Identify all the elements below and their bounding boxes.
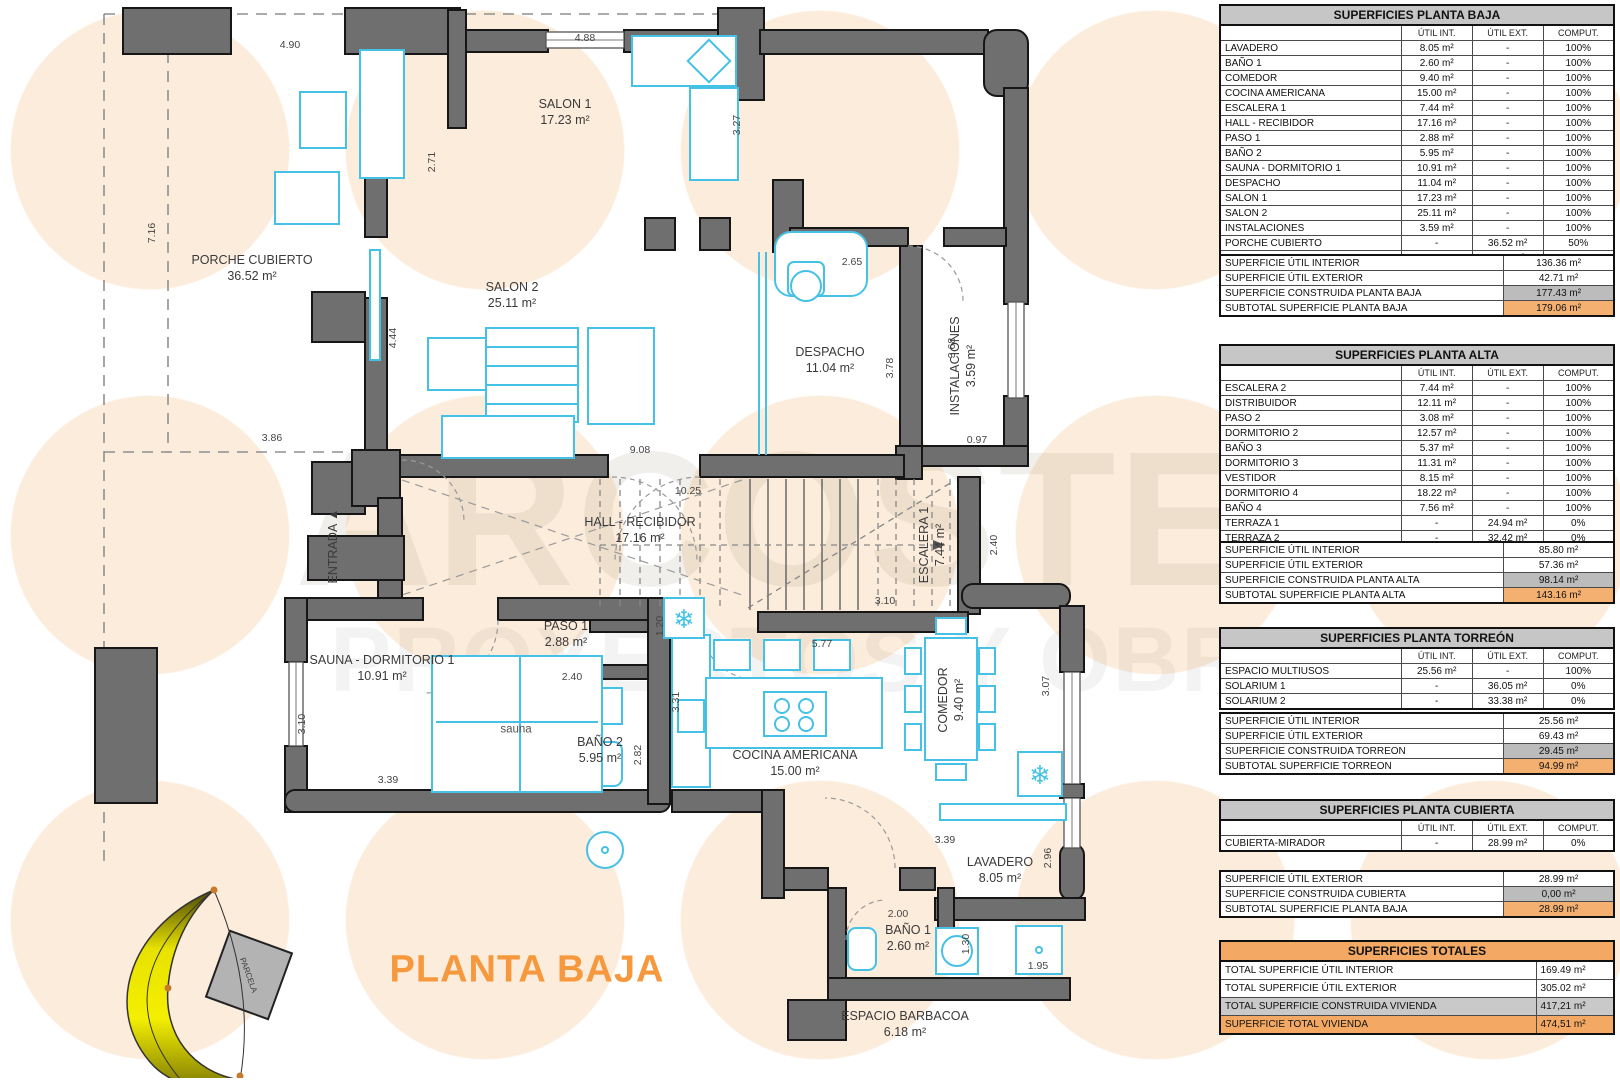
table-cell: - — [1472, 56, 1543, 71]
table-cell: 100% — [1543, 131, 1614, 146]
dimension-label: 3.68 — [946, 338, 958, 358]
table-cell: SUBTOTAL SUPERFICIE PLANTA ALTA — [1220, 588, 1504, 604]
table-cell: 94.99 m² — [1504, 759, 1614, 775]
table-rows: TOTAL SUPERFICIE ÚTIL INTERIOR169.49 m²T… — [1220, 961, 1614, 1034]
table-row: SUPERFICIE CONSTRUIDA PLANTA ALTA98.14 m… — [1220, 573, 1614, 588]
table-cell: - — [1401, 694, 1472, 710]
table-row: SOLARIUM 1-36.05 m²0% — [1220, 679, 1614, 694]
dimension-label: 4.44 — [387, 328, 399, 348]
room-label-sauna-dormitorio-1: SAUNA - DORMITORIO 110.91 m² — [297, 652, 467, 685]
table-cell: 100% — [1543, 396, 1614, 411]
dimension-label: 4.88 — [575, 32, 595, 44]
table-cell: 100% — [1543, 486, 1614, 501]
table-row: BAÑO 47.56 m²-100% — [1220, 501, 1614, 516]
table-cell: SUPERFICIE ÚTIL EXTERIOR — [1220, 558, 1504, 573]
table-cell: BAÑO 2 — [1220, 146, 1401, 161]
dimension-label: 3.10 — [875, 595, 895, 607]
dimension-label: 9.08 — [630, 444, 650, 456]
room-label-bano-2: BAÑO 25.95 m² — [577, 734, 623, 767]
table-row: VESTIDOR8.15 m²-100% — [1220, 471, 1614, 486]
table-cell: SUPERFICIE ÚTIL INTERIOR — [1220, 255, 1504, 271]
table-cell: DORMITORIO 4 — [1220, 486, 1401, 501]
table-cell: 5.37 m² — [1401, 441, 1472, 456]
table-cell: SUPERFICIE ÚTIL EXTERIOR — [1220, 871, 1504, 887]
table-body: ÚTIL INT. ÚTIL EXT. COMPUT. — [1220, 820, 1614, 836]
table-row: SOLARIUM 2-33.38 m²0% — [1220, 694, 1614, 710]
table-row: SUPERFICIE ÚTIL EXTERIOR57.36 m² — [1220, 558, 1614, 573]
dimension-label: 2.65 — [842, 256, 862, 268]
table-cell: 100% — [1543, 146, 1614, 161]
table-cell: - — [1401, 679, 1472, 694]
dimension-label: 1.30 — [960, 934, 972, 954]
table-header-row: ÚTIL INT. ÚTIL EXT. COMPUT. — [1220, 25, 1614, 41]
table-cell: 2.88 m² — [1401, 131, 1472, 146]
table-body: ÚTIL INT. ÚTIL EXT. COMPUT. — [1220, 25, 1614, 41]
table-cell: 69.43 m² — [1504, 729, 1614, 744]
table-cell: - — [1472, 456, 1543, 471]
dimension-label: 2.82 — [632, 745, 644, 765]
table-cell: 24.94 m² — [1472, 516, 1543, 531]
table-cell: - — [1472, 191, 1543, 206]
table-superficies-planta-torreon: SUPERFICIES PLANTA TORREÓN ÚTIL INT. ÚTI… — [1219, 627, 1615, 710]
dimension-label: 3.78 — [884, 358, 896, 378]
table-cell: SUBTOTAL SUPERFICIE PLANTA BAJA — [1220, 902, 1504, 918]
table-superficies-planta-cubierta: SUPERFICIES PLANTA CUBIERTA ÚTIL INT. ÚT… — [1219, 799, 1615, 852]
table-cell: DORMITORIO 3 — [1220, 456, 1401, 471]
table-cell: - — [1401, 236, 1472, 251]
dimension-label: 10.25 — [675, 485, 701, 497]
table-row: CUBIERTA-MIRADOR-28.99 m²0% — [1220, 836, 1614, 852]
table-cell: - — [1472, 486, 1543, 501]
table-cell: 28.99 m² — [1504, 902, 1614, 918]
table-cell: - — [1472, 41, 1543, 56]
table-row: DISTRIBUIDOR12.11 m²-100% — [1220, 396, 1614, 411]
table-cell: - — [1472, 71, 1543, 86]
table-cell: 100% — [1543, 441, 1614, 456]
dimension-label: 3.10 — [296, 714, 308, 734]
table-cell: 8.15 m² — [1401, 471, 1472, 486]
room-label-despacho: DESPACHO11.04 m² — [795, 344, 864, 377]
table-cell: SOLARIUM 2 — [1220, 694, 1401, 710]
table-cell: TOTAL SUPERFICIE ÚTIL INTERIOR — [1220, 961, 1536, 980]
table-header-row: ÚTIL INT. ÚTIL EXT. COMPUT. — [1220, 820, 1614, 836]
table-header-row: ÚTIL INT. ÚTIL EXT. COMPUT. — [1220, 648, 1614, 664]
svg-text:❄: ❄ — [1029, 761, 1051, 791]
table-cell: 11.04 m² — [1401, 176, 1472, 191]
table-cell: 10.91 m² — [1401, 161, 1472, 176]
table-cell: 98.14 m² — [1504, 573, 1614, 588]
table-cell: 100% — [1543, 101, 1614, 116]
table-cell: 36.52 m² — [1472, 236, 1543, 251]
table-cell: 8.05 m² — [1401, 41, 1472, 56]
table-title: SUPERFICIES PLANTA TORREÓN — [1219, 627, 1615, 647]
table-row: PASO 12.88 m²-100% — [1220, 131, 1614, 146]
table-cell: SUPERFICIE ÚTIL INTERIOR — [1220, 713, 1504, 729]
table-cell: SUBTOTAL SUPERFICIE TORREON — [1220, 759, 1504, 775]
table-cell: 28.99 m² — [1472, 836, 1543, 852]
table-body: ÚTIL INT. ÚTIL EXT. COMPUT. — [1220, 648, 1614, 664]
table-row: PORCHE CUBIERTO-36.52 m²50% — [1220, 236, 1614, 251]
table-cell: 143.16 m² — [1504, 588, 1614, 604]
table-row: TOTAL SUPERFICIE CONSTRUIDA VIVIENDA417,… — [1220, 998, 1614, 1016]
table-cell: 12.57 m² — [1401, 426, 1472, 441]
table-cell: - — [1472, 381, 1543, 396]
table-cell: - — [1472, 161, 1543, 176]
table-cell: VESTIDOR — [1220, 471, 1401, 486]
dimension-label: 2.96 — [1042, 848, 1054, 868]
table-row: INSTALACIONES3.59 m²-100% — [1220, 221, 1614, 236]
table-cell: 17.23 m² — [1401, 191, 1472, 206]
table-title: SUPERFICIES TOTALES — [1219, 940, 1615, 960]
table-rows: LAVADERO8.05 m²-100%BAÑO 12.60 m²-100%CO… — [1220, 41, 1614, 267]
table-cell: 100% — [1543, 176, 1614, 191]
table-rows: SUPERFICIE ÚTIL INTERIOR85.80 m²SUPERFIC… — [1220, 542, 1614, 603]
dimension-label: 2.00 — [888, 908, 908, 920]
table-row: TERRAZA 1-24.94 m²0% — [1220, 516, 1614, 531]
table-row: SUBTOTAL SUPERFICIE PLANTA ALTA143.16 m² — [1220, 588, 1614, 604]
table-cell: 3.08 m² — [1401, 411, 1472, 426]
table-row: PASO 23.08 m²-100% — [1220, 411, 1614, 426]
table-cell: 29.45 m² — [1504, 744, 1614, 759]
table-cell: SUPERFICIE CONSTRUIDA CUBIERTA — [1220, 887, 1504, 902]
table-cell: 100% — [1543, 86, 1614, 101]
table-cell: - — [1472, 441, 1543, 456]
blueprint-sheet: ARCOSTEC PROYECTOS Y OBRAS — [0, 0, 1620, 1080]
table-row: TOTAL SUPERFICIE ÚTIL INTERIOR169.49 m² — [1220, 961, 1614, 980]
table-cell: - — [1472, 221, 1543, 236]
table-cell: - — [1472, 86, 1543, 101]
table-cell: 18.22 m² — [1401, 486, 1472, 501]
table-cell: - — [1472, 471, 1543, 486]
table-cell: - — [1472, 176, 1543, 191]
table-cell: 136.36 m² — [1504, 255, 1614, 271]
room-label-porche-cubierto: PORCHE CUBIERTO36.52 m² — [191, 252, 312, 285]
porch-outline — [104, 14, 718, 868]
table-cell: 305.02 m² — [1536, 980, 1614, 998]
room-label-paso-1: PASO 12.88 m² — [544, 618, 588, 651]
dimension-label: 3.07 — [1040, 676, 1052, 696]
table-cell: 0,00 m² — [1504, 887, 1614, 902]
table-title: SUPERFICIES PLANTA BAJA — [1219, 4, 1615, 24]
table-cell: 100% — [1543, 221, 1614, 236]
table-cell: 42.71 m² — [1504, 271, 1614, 286]
table-cell: 36.05 m² — [1472, 679, 1543, 694]
table-row: SALON 225.11 m²-100% — [1220, 206, 1614, 221]
dimension-label: 2.40 — [562, 671, 582, 683]
table-cell: BAÑO 4 — [1220, 501, 1401, 516]
table-cell: 100% — [1543, 71, 1614, 86]
table-row: DORMITORIO 311.31 m²-100% — [1220, 456, 1614, 471]
table-cell: 100% — [1543, 381, 1614, 396]
table-cell: SOLARIUM 1 — [1220, 679, 1401, 694]
table-cell: - — [1472, 411, 1543, 426]
table-row: DESPACHO11.04 m²-100% — [1220, 176, 1614, 191]
table-cell: 17.16 m² — [1401, 116, 1472, 131]
table-cell: 100% — [1543, 501, 1614, 516]
table-cell: - — [1472, 206, 1543, 221]
table-row: ESPACIO MULTIUSOS25.56 m²-100% — [1220, 664, 1614, 679]
table-cell: 28.99 m² — [1504, 871, 1614, 887]
table-row: COMEDOR9.40 m²-100% — [1220, 71, 1614, 86]
table-cell: 5.95 m² — [1401, 146, 1472, 161]
room-label-espacio-barbacoa: ESPACIO BARBACOA6.18 m² — [841, 1008, 969, 1041]
table-row: SUBTOTAL SUPERFICIE PLANTA BAJA28.99 m² — [1220, 902, 1614, 918]
table-cell: BAÑO 3 — [1220, 441, 1401, 456]
table-row: SUPERFICIE ÚTIL INTERIOR136.36 m² — [1220, 255, 1614, 271]
table-cell: 2.60 m² — [1401, 56, 1472, 71]
table-cell: COCINA AMERICANA — [1220, 86, 1401, 101]
table-cell: 417,21 m² — [1536, 998, 1614, 1016]
table-rows: ESPACIO MULTIUSOS25.56 m²-100%SOLARIUM 1… — [1220, 664, 1614, 710]
table-row: TOTAL SUPERFICIE ÚTIL EXTERIOR305.02 m² — [1220, 980, 1614, 998]
table-cell: SUPERFICIE ÚTIL EXTERIOR — [1220, 271, 1504, 286]
table-row: SUPERFICIE CONSTRUIDA PLANTA BAJA177.43 … — [1220, 286, 1614, 301]
table-cell: ESCALERA 2 — [1220, 381, 1401, 396]
table-row: SUPERFICIE ÚTIL EXTERIOR28.99 m² — [1220, 871, 1614, 887]
table-superficies-planta-alta: SUPERFICIES PLANTA ALTA ÚTIL INT. ÚTIL E… — [1219, 344, 1615, 547]
table-row: LAVADERO8.05 m²-100% — [1220, 41, 1614, 56]
table-cell: 177.43 m² — [1504, 286, 1614, 301]
table-row: SUBTOTAL SUPERFICIE PLANTA BAJA179.06 m² — [1220, 301, 1614, 317]
table-row: SUBTOTAL SUPERFICIE TORREON94.99 m² — [1220, 759, 1614, 775]
table-row: SUPERFICIE ÚTIL INTERIOR85.80 m² — [1220, 542, 1614, 558]
table-row: ESCALERA 17.44 m²-100% — [1220, 101, 1614, 116]
table-cell: - — [1472, 146, 1543, 161]
summary-planta-alta: SUPERFICIE ÚTIL INTERIOR85.80 m²SUPERFIC… — [1219, 541, 1615, 604]
room-label-salon-1: SALON 117.23 m² — [539, 96, 592, 129]
room-label-lavadero: LAVADERO8.05 m² — [967, 854, 1033, 887]
table-cell: SUPERFICIE ÚTIL EXTERIOR — [1220, 729, 1504, 744]
table-cell: SAUNA - DORMITORIO 1 — [1220, 161, 1401, 176]
table-row: ESCALERA 27.44 m²-100% — [1220, 381, 1614, 396]
dimension-label: 3.39 — [935, 834, 955, 846]
table-cell: SUPERFICIE CONSTRUIDA PLANTA BAJA — [1220, 286, 1504, 301]
table-cell: 100% — [1543, 56, 1614, 71]
table-cell: SALON 2 — [1220, 206, 1401, 221]
table-cell: - — [1472, 501, 1543, 516]
table-cell: 3.59 m² — [1401, 221, 1472, 236]
table-row: SAUNA - DORMITORIO 110.91 m²-100% — [1220, 161, 1614, 176]
table-cell: 100% — [1543, 191, 1614, 206]
table-cell: 100% — [1543, 161, 1614, 176]
svg-text:❄: ❄ — [673, 605, 695, 635]
table-cell: LAVADERO — [1220, 41, 1401, 56]
dimension-label: 3.86 — [262, 432, 282, 444]
table-row: SUPERFICIE CONSTRUIDA TORREON29.45 m² — [1220, 744, 1614, 759]
sun-path-diagram: PARCELA — [66, 878, 316, 1078]
table-cell: - — [1472, 101, 1543, 116]
table-row: DORMITORIO 418.22 m²-100% — [1220, 486, 1614, 501]
table-cell: 100% — [1543, 471, 1614, 486]
dimension-label: 3.27 — [731, 115, 743, 135]
dimension-label: 5.77 — [812, 638, 832, 650]
table-cell: ESPACIO MULTIUSOS — [1220, 664, 1401, 679]
table-cell: 7.44 m² — [1401, 381, 1472, 396]
sauna-cabin-label: sauna — [500, 723, 531, 738]
table-cell: - — [1472, 131, 1543, 146]
table-cell: PASO 1 — [1220, 131, 1401, 146]
table-cell: 179.06 m² — [1504, 301, 1614, 317]
dimension-label: 4.90 — [280, 39, 300, 51]
table-cell: SALON 1 — [1220, 191, 1401, 206]
table-cell: 7.44 m² — [1401, 101, 1472, 116]
table-cell: SUPERFICIE ÚTIL INTERIOR — [1220, 542, 1504, 558]
table-cell: 57.36 m² — [1504, 558, 1614, 573]
table-cell: SUPERFICIE CONSTRUIDA TORREON — [1220, 744, 1504, 759]
dimension-label: 3.39 — [378, 774, 398, 786]
table-cell: TOTAL SUPERFICIE CONSTRUIDA VIVIENDA — [1220, 998, 1536, 1016]
summary-planta-baja: SUPERFICIE ÚTIL INTERIOR136.36 m²SUPERFI… — [1219, 254, 1615, 317]
summary-cubierta: SUPERFICIE ÚTIL EXTERIOR28.99 m²SUPERFIC… — [1219, 870, 1615, 918]
room-label-cocina-americana: COCINA AMERICANA15.00 m² — [732, 747, 857, 780]
table-cell: 9.40 m² — [1401, 71, 1472, 86]
table-cell: - — [1472, 426, 1543, 441]
table-cell: ESCALERA 1 — [1220, 101, 1401, 116]
table-cell: TERRAZA 1 — [1220, 516, 1401, 531]
table-cell: - — [1401, 836, 1472, 852]
table-row: SUPERFICIE TOTAL VIVIENDA474,51 m² — [1220, 1016, 1614, 1035]
dimension-label: 2.71 — [426, 152, 438, 172]
table-cell: TOTAL SUPERFICIE ÚTIL EXTERIOR — [1220, 980, 1536, 998]
table-cell: 15.00 m² — [1401, 86, 1472, 101]
table-cell: 33.38 m² — [1472, 694, 1543, 710]
table-cell: PASO 2 — [1220, 411, 1401, 426]
table-cell: 100% — [1543, 456, 1614, 471]
table-cell: SUBTOTAL SUPERFICIE PLANTA BAJA — [1220, 301, 1504, 317]
table-cell: 100% — [1543, 206, 1614, 221]
table-cell: 0% — [1543, 679, 1614, 694]
table-superficies-planta-baja: SUPERFICIES PLANTA BAJA ÚTIL INT. ÚTIL E… — [1219, 4, 1615, 267]
table-body: ÚTIL INT. ÚTIL EXT. COMPUT. — [1220, 365, 1614, 381]
summary-torreon: SUPERFICIE ÚTIL INTERIOR25.56 m²SUPERFIC… — [1219, 712, 1615, 775]
dimension-label: 1.20 — [654, 616, 666, 636]
table-row: SUPERFICIE ÚTIL EXTERIOR69.43 m² — [1220, 729, 1614, 744]
table-cell: 474,51 m² — [1536, 1016, 1614, 1035]
table-cell: 100% — [1543, 116, 1614, 131]
table-header-row: ÚTIL INT. ÚTIL EXT. COMPUT. — [1220, 365, 1614, 381]
table-cell: 25.56 m² — [1504, 713, 1614, 729]
table-cell: SUPERFICIE CONSTRUIDA PLANTA ALTA — [1220, 573, 1504, 588]
dimension-label: 2.40 — [988, 535, 1000, 555]
table-cell: 25.56 m² — [1401, 664, 1472, 679]
table-cell: - — [1472, 664, 1543, 679]
table-cell: COMEDOR — [1220, 71, 1401, 86]
table-cell: CUBIERTA-MIRADOR — [1220, 836, 1401, 852]
dimension-label: 3.31 — [670, 692, 682, 712]
table-cell: 12.11 m² — [1401, 396, 1472, 411]
table-row: SALON 117.23 m²-100% — [1220, 191, 1614, 206]
table-cell: INSTALACIONES — [1220, 221, 1401, 236]
table-row: SUPERFICIE CONSTRUIDA CUBIERTA0,00 m² — [1220, 887, 1614, 902]
table-row: HALL - RECIBIDOR17.16 m²-100% — [1220, 116, 1614, 131]
table-rows: SUPERFICIE ÚTIL INTERIOR25.56 m²SUPERFIC… — [1220, 713, 1614, 774]
table-cell: 50% — [1543, 236, 1614, 251]
table-cell: - — [1401, 516, 1472, 531]
table-cell: - — [1472, 116, 1543, 131]
room-label-instalaciones: INSTALACIONES3.59 m² — [947, 316, 980, 415]
table-cell: 0% — [1543, 516, 1614, 531]
table-row: DORMITORIO 212.57 m²-100% — [1220, 426, 1614, 441]
table-title: SUPERFICIES PLANTA CUBIERTA — [1219, 799, 1615, 819]
table-cell: 100% — [1543, 664, 1614, 679]
table-row: COCINA AMERICANA15.00 m²-100% — [1220, 86, 1614, 101]
table-cell: HALL - RECIBIDOR — [1220, 116, 1401, 131]
dimension-label: 0.97 — [967, 434, 987, 446]
table-cell: 85.80 m² — [1504, 542, 1614, 558]
table-cell: 0% — [1543, 836, 1614, 852]
table-cell: 169.49 m² — [1536, 961, 1614, 980]
table-row: BAÑO 12.60 m²-100% — [1220, 56, 1614, 71]
table-row: BAÑO 35.37 m²-100% — [1220, 441, 1614, 456]
table-rows: ESCALERA 27.44 m²-100%DISTRIBUIDOR12.11 … — [1220, 381, 1614, 547]
table-cell: 0% — [1543, 694, 1614, 710]
table-superficies-totales: SUPERFICIES TOTALES TOTAL SUPERFICIE ÚTI… — [1219, 940, 1615, 1035]
table-rows: SUPERFICIE ÚTIL EXTERIOR28.99 m²SUPERFIC… — [1220, 871, 1614, 917]
room-label-bano-1: BAÑO 12.60 m² — [885, 922, 931, 955]
table-cell: 25.11 m² — [1401, 206, 1472, 221]
table-cell: 100% — [1543, 41, 1614, 56]
table-cell: - — [1472, 396, 1543, 411]
page-title: PLANTA BAJA — [390, 949, 665, 992]
table-cell: 100% — [1543, 426, 1614, 441]
table-cell: 100% — [1543, 411, 1614, 426]
dimension-label: 7.16 — [146, 223, 158, 243]
entrada-label: ENTRADA ▲ — [325, 509, 341, 584]
table-row: SUPERFICIE ÚTIL EXTERIOR42.71 m² — [1220, 271, 1614, 286]
table-cell: 11.31 m² — [1401, 456, 1472, 471]
table-cell: PORCHE CUBIERTO — [1220, 236, 1401, 251]
table-cell: BAÑO 1 — [1220, 56, 1401, 71]
room-label-hall-recibidor: HALL - RECIBIDOR17.16 m² — [584, 514, 695, 547]
table-title: SUPERFICIES PLANTA ALTA — [1219, 344, 1615, 364]
table-cell: DORMITORIO 2 — [1220, 426, 1401, 441]
table-row: SUPERFICIE ÚTIL INTERIOR25.56 m² — [1220, 713, 1614, 729]
dimension-label: 1.95 — [1028, 960, 1048, 972]
table-row: BAÑO 25.95 m²-100% — [1220, 146, 1614, 161]
table-cell: DISTRIBUIDOR — [1220, 396, 1401, 411]
table-cell: 7.56 m² — [1401, 501, 1472, 516]
table-rows: SUPERFICIE ÚTIL INTERIOR136.36 m²SUPERFI… — [1220, 255, 1614, 316]
room-label-salon-2: SALON 225.11 m² — [486, 279, 539, 312]
table-rows: CUBIERTA-MIRADOR-28.99 m²0% — [1220, 836, 1614, 852]
table-cell: SUPERFICIE TOTAL VIVIENDA — [1220, 1016, 1536, 1035]
room-label-escalera-1: ESCALERA 17.44 m² — [916, 507, 949, 583]
room-label-comedor: COMEDOR9.40 m² — [935, 667, 968, 732]
table-cell: DESPACHO — [1220, 176, 1401, 191]
